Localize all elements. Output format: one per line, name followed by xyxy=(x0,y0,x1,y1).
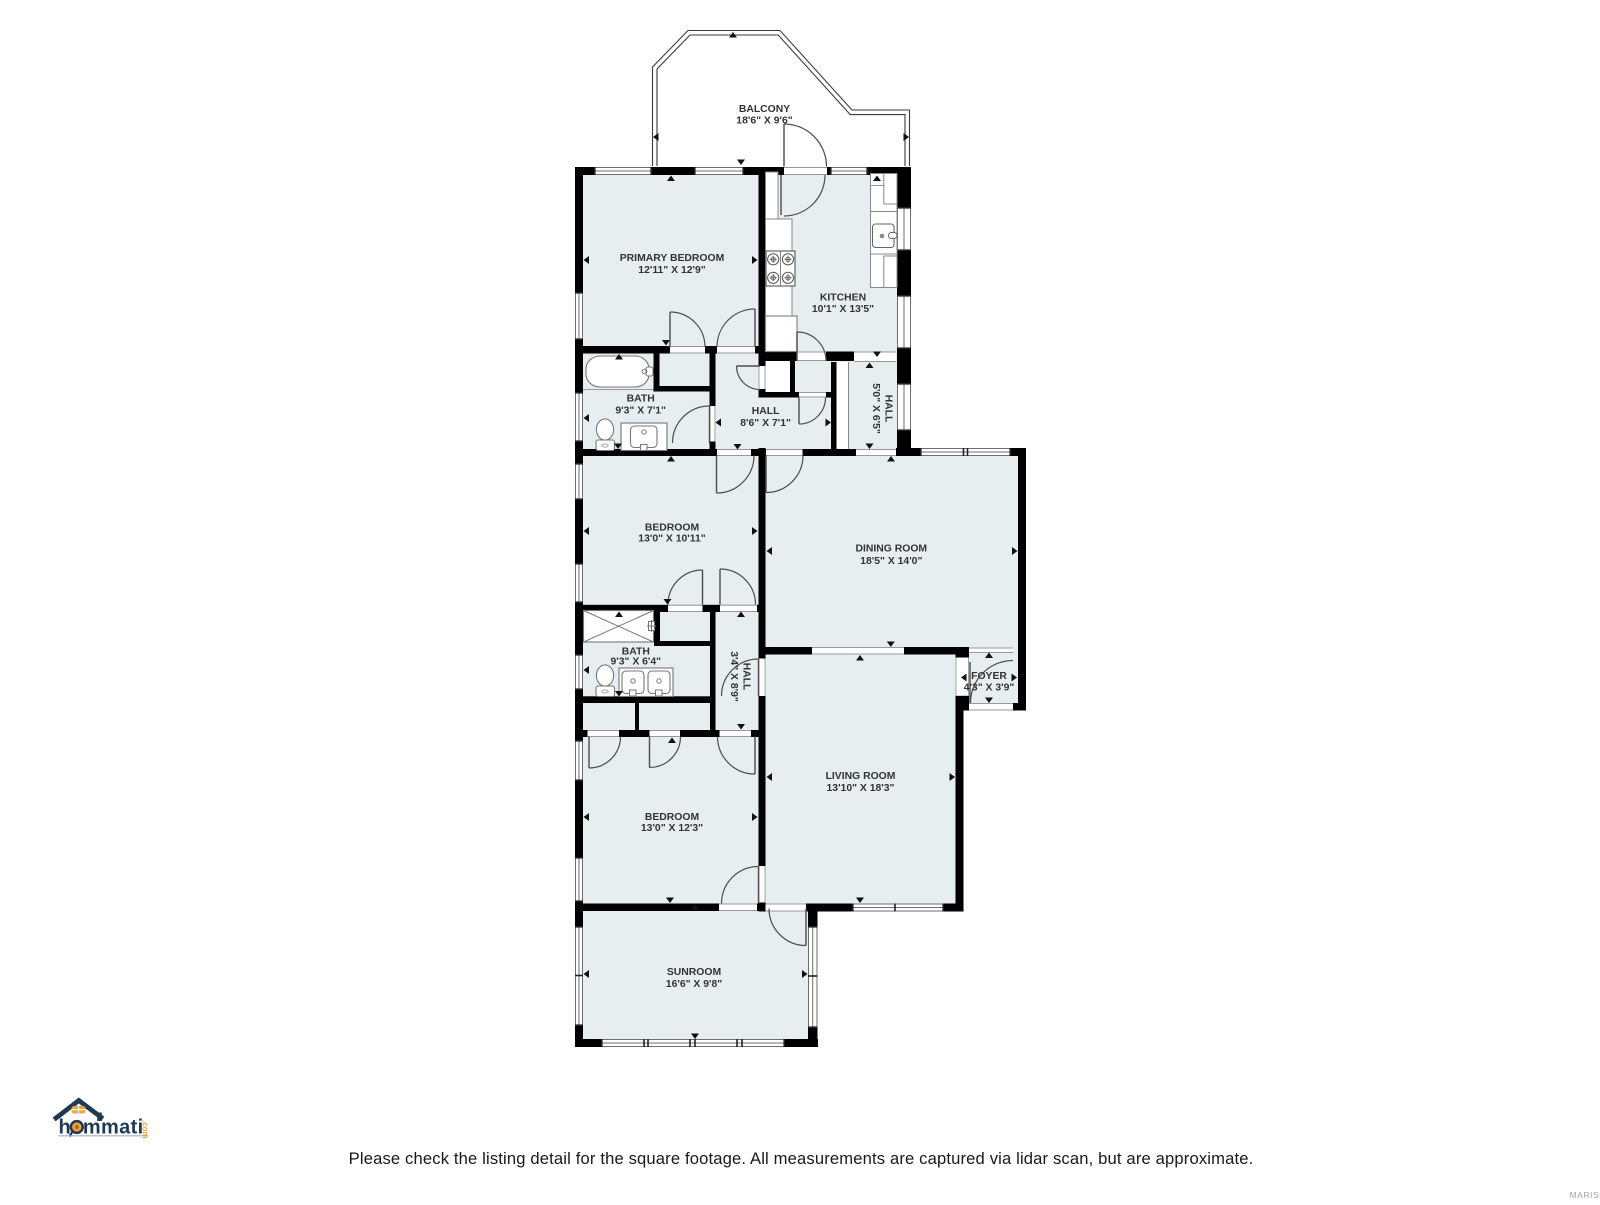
svg-text:LIVING ROOM: LIVING ROOM xyxy=(826,771,896,782)
svg-text:18'5" X 14'0": 18'5" X 14'0" xyxy=(860,556,922,567)
svg-text:HALL: HALL xyxy=(740,663,751,691)
svg-text:5'0" X 6'5": 5'0" X 6'5" xyxy=(870,383,881,434)
svg-text:13'10" X 18'3": 13'10" X 18'3" xyxy=(827,783,895,794)
svg-text:Please check the listing detai: Please check the listing detail for the … xyxy=(349,1149,1254,1168)
svg-text:13'0" X 12'3": 13'0" X 12'3" xyxy=(641,823,703,834)
svg-text:12'11" X 12'9": 12'11" X 12'9" xyxy=(638,265,705,276)
svg-text:BEDROOM: BEDROOM xyxy=(645,812,699,823)
svg-text:HALL: HALL xyxy=(883,395,894,423)
svg-text:FOYER: FOYER xyxy=(971,671,1007,682)
svg-text:.com: .com xyxy=(141,1120,150,1139)
svg-text:mmati: mmati xyxy=(83,1117,144,1139)
svg-text:BALCONY: BALCONY xyxy=(739,104,790,115)
svg-text:SUNROOM: SUNROOM xyxy=(667,967,721,978)
svg-text:KITCHEN: KITCHEN xyxy=(820,293,866,304)
svg-text:BEDROOM: BEDROOM xyxy=(645,522,699,533)
svg-text:HALL: HALL xyxy=(752,406,780,417)
svg-text:9'3" X 7'1": 9'3" X 7'1" xyxy=(615,405,666,416)
svg-text:MARIS: MARIS xyxy=(1570,1190,1599,1200)
svg-text:3'4" X 8'9": 3'4" X 8'9" xyxy=(728,651,739,702)
svg-text:10'1" X 13'5": 10'1" X 13'5" xyxy=(812,304,874,315)
svg-text:BATH: BATH xyxy=(627,393,655,404)
svg-text:13'0" X 10'11": 13'0" X 10'11" xyxy=(638,533,705,544)
svg-text:4'3" X 3'9": 4'3" X 3'9" xyxy=(964,683,1015,694)
svg-text:9'3" X 6'4": 9'3" X 6'4" xyxy=(610,657,661,668)
svg-text:8'6" X 7'1": 8'6" X 7'1" xyxy=(740,418,791,429)
svg-text:16'6" X 9'8": 16'6" X 9'8" xyxy=(666,979,722,990)
svg-text:DINING ROOM: DINING ROOM xyxy=(856,544,928,555)
svg-text:PRIMARY BEDROOM: PRIMARY BEDROOM xyxy=(620,253,725,264)
